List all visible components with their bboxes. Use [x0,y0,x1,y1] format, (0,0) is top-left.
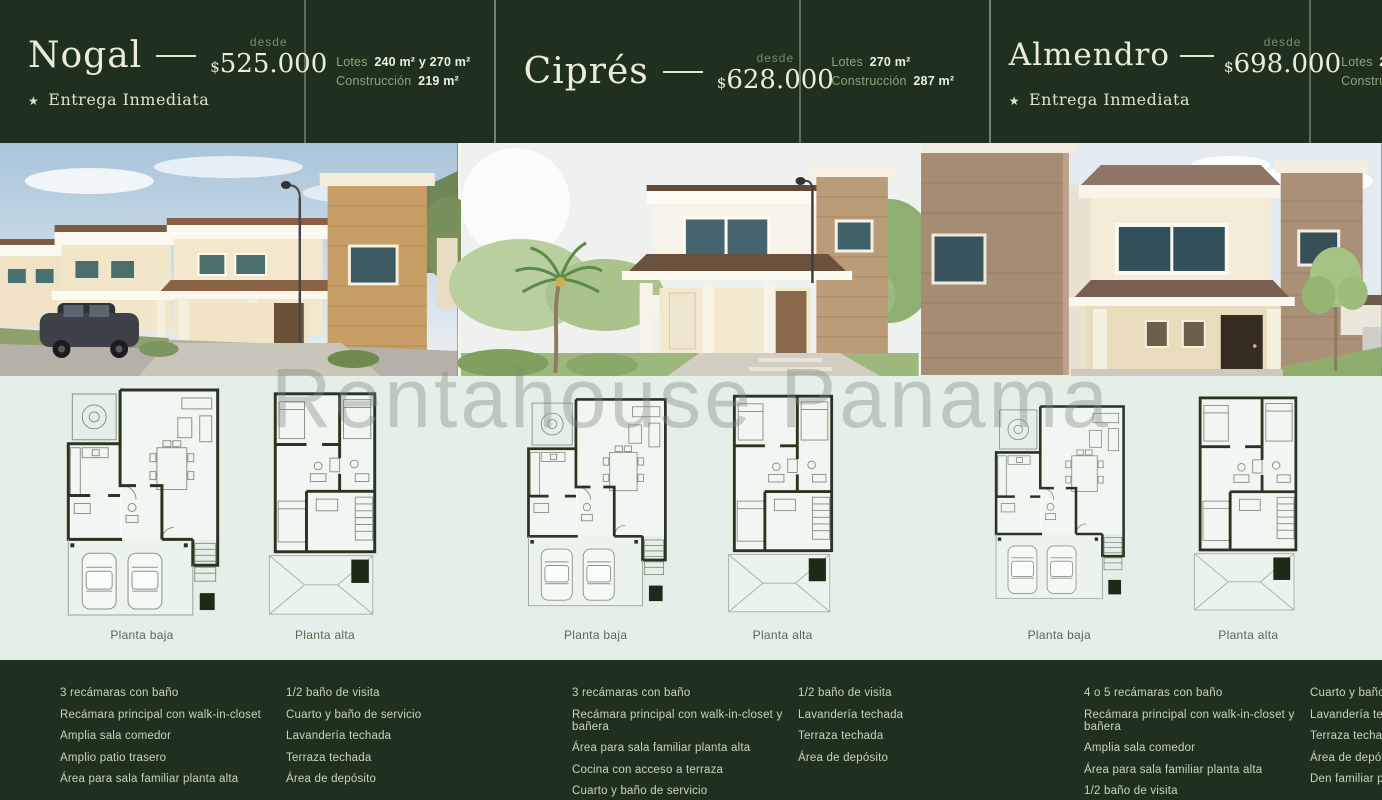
house-photo-almendro [921,143,1382,376]
star-icon: ★ [28,94,39,108]
features-almendro: 4 o 5 recámaras con baño Recámara princi… [1024,660,1382,800]
desde-label: desde [250,35,288,49]
model-header-cipres: Ciprés desde $628.000 Lotes 270 m² Const… [496,0,991,143]
house-photo-cipres [461,143,922,376]
features-cipres: 3 recámaras con baño Recámara principal … [512,660,1024,800]
feature-item: Lavandería techada [286,730,512,742]
desde-label: desde [756,51,794,65]
feature-item: Lavandería techada [1310,709,1382,721]
plan-label: Planta alta [753,628,813,642]
floorplan-almendro-alta: Planta alta [1187,386,1309,642]
construction-line: Construcción 219 m² [336,74,494,88]
model-header-left: Almendro desde $698.000 ★Entrega Inmedia… [991,0,1311,143]
feature-item: Área para sala familiar planta alta [572,742,798,754]
feature-list: 3 recámaras con baño Recámara principal … [572,687,798,800]
construction-line: Construcción 331 m² [1341,74,1382,88]
model-specs: Lotes 270 m² Construcción 287 m² [801,0,988,143]
delivery-badge: ★Entrega Inmediata [1009,90,1309,109]
currency-symbol: $ [1224,58,1234,76]
brochure-page: Nogal desde $525.000 ★Entrega Inmediata … [0,0,1382,800]
house-photo-nogal [0,143,461,376]
feature-item: Cuarto y baño de servicio [1310,687,1382,699]
delivery-badge: ★Entrega Inmediata [28,90,304,109]
feature-item: 1/2 baño de visita [286,687,512,699]
header-band: Nogal desde $525.000 ★Entrega Inmediata … [0,0,1382,143]
feature-item: Lavandería techada [798,709,1024,721]
feature-item: Den familiar planta baja [1310,773,1382,785]
feature-item: Área para sala familiar planta alta [1084,764,1310,776]
lots-line: Lotes 288 m² y 360 m² [1341,55,1382,69]
floorplan-nogal-baja: Planta baja [62,386,222,642]
plan-label: Planta alta [1218,628,1278,642]
lots-line: Lotes 270 m² [831,55,988,69]
model-name: Almendro [1009,40,1170,71]
lots-line: Lotes 240 m² y 270 m² [336,55,494,69]
feature-item: Área para sala familiar planta alta [60,773,286,785]
feature-item: 1/2 baño de visita [798,687,1024,699]
feature-item: Recámara principal con walk-in-closet y … [1084,709,1310,733]
plan-label: Planta baja [564,628,627,642]
watermark: Rentahouse Panama [271,356,1111,440]
feature-list: 3 recámaras con baño Recámara principal … [60,687,286,800]
plan-label: Planta alta [295,628,355,642]
photo-strip [0,143,1382,376]
feature-item: Cuarto y baño de servicio [572,785,798,797]
feature-list: 1/2 baño de visita Lavandería techada Te… [798,687,1024,800]
model-header-left: Ciprés desde $628.000 [496,0,802,143]
dash-divider [663,71,703,73]
features-band: 3 recámaras con baño Recámara principal … [0,660,1382,800]
model-header-left: Nogal desde $525.000 ★Entrega Inmediata [0,0,306,143]
construction-line: Construcción 287 m² [831,74,988,88]
features-nogal: 3 recámaras con baño Recámara principal … [0,660,512,800]
feature-item: Terraza techada [286,752,512,764]
feature-list: 4 o 5 recámaras con baño Recámara princi… [1084,687,1310,800]
feature-item: Recámara principal con walk-in-closet [60,709,286,721]
feature-item: Cocina con acceso a terraza [572,764,798,776]
feature-item: Amplio patio trasero [60,752,286,764]
plan-label: Planta baja [1028,628,1091,642]
model-name: Nogal [28,38,142,74]
star-icon: ★ [1009,94,1020,108]
feature-list: 1/2 baño de visita Cuarto y baño de serv… [286,687,512,800]
model-header-almendro: Almendro desde $698.000 ★Entrega Inmedia… [991,0,1382,143]
model-name: Ciprés [524,54,649,90]
feature-item: Área de depósito [798,752,1024,764]
feature-item: Área de depósito [286,773,512,785]
model-specs: Lotes 240 m² y 270 m² Construcción 219 m… [306,0,494,143]
feature-item: Área de depósito [1310,752,1382,764]
model-header-nogal: Nogal desde $525.000 ★Entrega Inmediata … [0,0,496,143]
plan-label: Planta baja [110,628,173,642]
dash-divider [1180,55,1214,57]
feature-item: 3 recámaras con baño [60,687,286,699]
feature-item: Cuarto y baño de servicio [286,709,512,721]
feature-item: 1/2 baño de visita [1084,785,1310,797]
dash-divider [156,55,196,57]
feature-item: Amplia sala comedor [1084,742,1310,754]
feature-list: Cuarto y baño de servicio Lavandería tec… [1310,687,1382,800]
model-specs: Lotes 288 m² y 360 m² Construcción 331 m… [1311,0,1382,143]
feature-item: Terraza techada [1310,730,1382,742]
feature-item: 4 o 5 recámaras con baño [1084,687,1310,699]
desde-label: desde [1264,35,1302,49]
feature-item: Terraza techada [798,730,1024,742]
currency-symbol: $ [717,74,727,92]
feature-item: 3 recámaras con baño [572,687,798,699]
currency-symbol: $ [210,58,220,76]
feature-item: Recámara principal con walk-in-closet y … [572,709,798,733]
feature-item: Amplia sala comedor [60,730,286,742]
